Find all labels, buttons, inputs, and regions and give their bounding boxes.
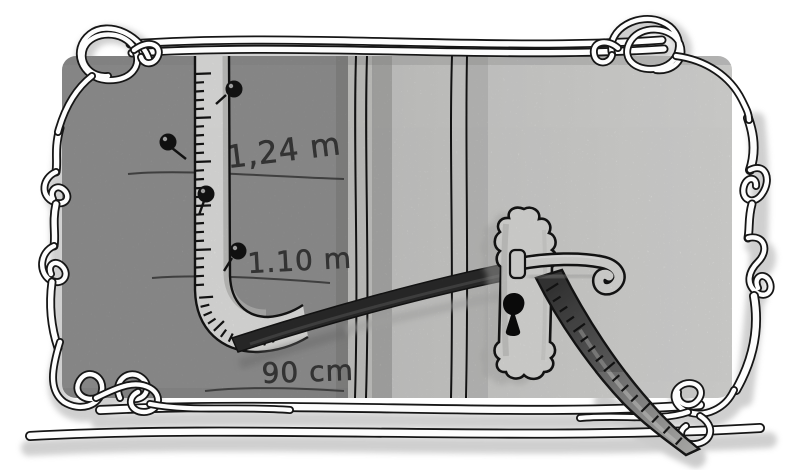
illustration-canvas: 1,24 m 1.10 m 90 cm [0,0,790,470]
frame-top-band [132,49,664,53]
door-measuring-illustration: 1,24 m 1.10 m 90 cm [0,0,790,470]
frame-left-band [54,204,56,246]
paper-grain [62,56,732,398]
